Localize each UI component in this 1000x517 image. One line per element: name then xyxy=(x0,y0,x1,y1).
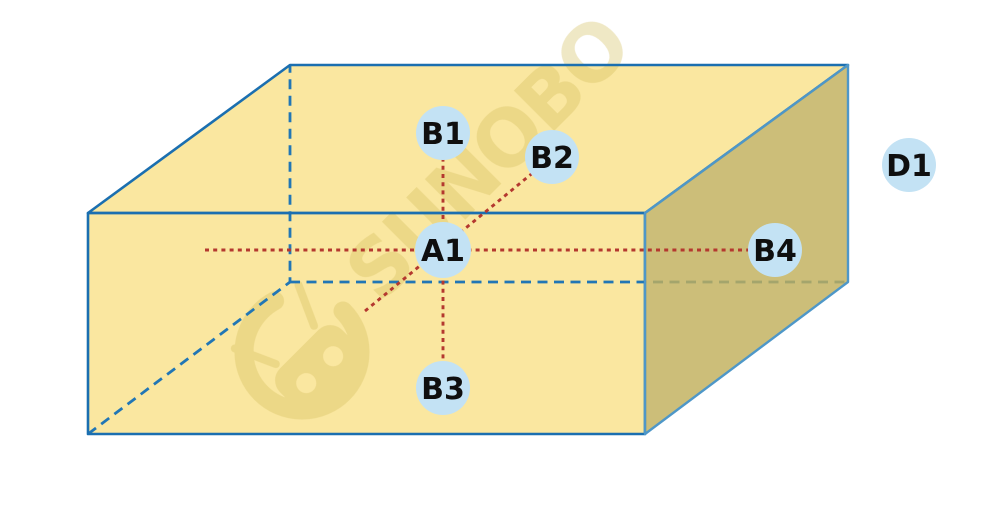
cuboid-diagram: SUNOBO A1 B1 B2 B3 B4 D1 xyxy=(0,0,1000,517)
point-a1-label: A1 xyxy=(421,234,465,269)
point-b4-label: B4 xyxy=(753,234,797,269)
point-b3-label: B3 xyxy=(421,372,465,407)
point-b2-label: B2 xyxy=(530,141,574,176)
point-b1-label: B1 xyxy=(421,117,465,152)
point-d1-label: D1 xyxy=(886,149,932,184)
cuboid-diagram-canvas: SUNOBO A1 B1 B2 B3 B4 D1 xyxy=(0,0,1000,517)
